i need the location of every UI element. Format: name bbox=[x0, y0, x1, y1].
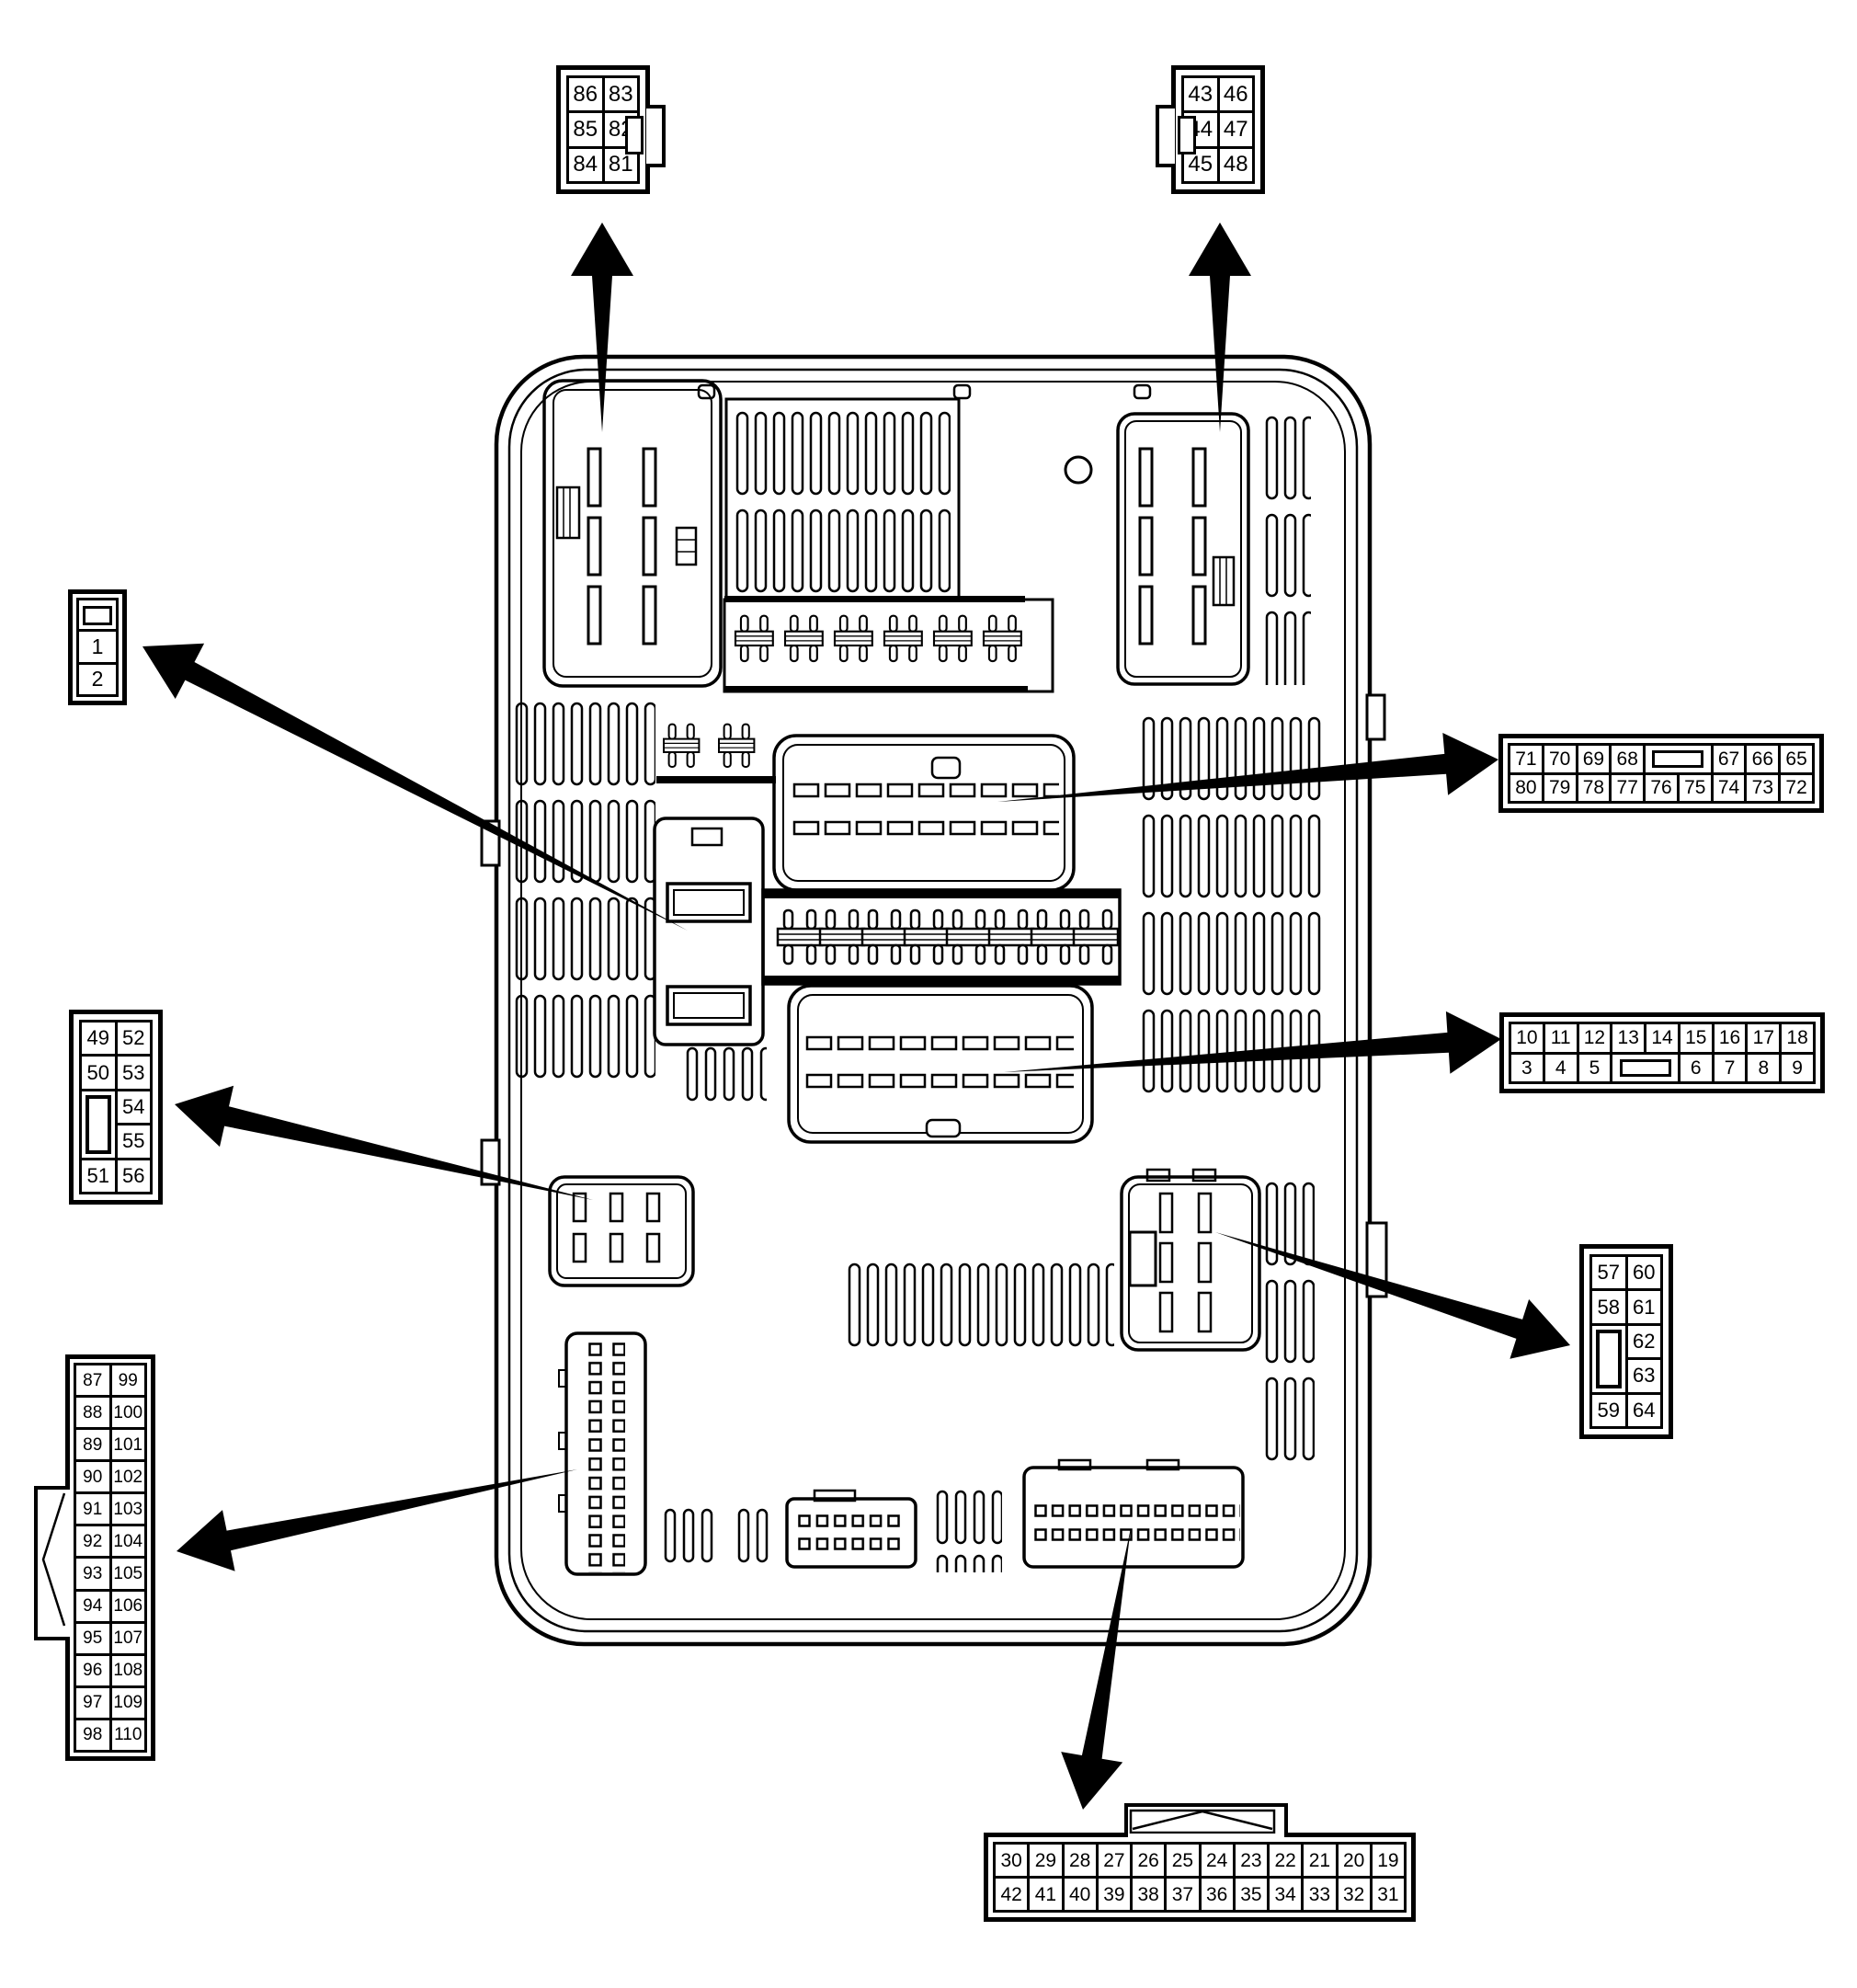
connector-notch bbox=[34, 1486, 70, 1640]
pin-66: 66 bbox=[1747, 746, 1778, 772]
pinout-table-19-42: 3029282726252423222120194241403938373635… bbox=[984, 1833, 1416, 1922]
pin-25: 25 bbox=[1167, 1845, 1198, 1876]
pin-80: 80 bbox=[1510, 775, 1542, 802]
pin-78: 78 bbox=[1578, 775, 1610, 802]
pin-1: 1 bbox=[79, 629, 116, 662]
pin-97: 97 bbox=[76, 1688, 109, 1718]
callout-arrow bbox=[177, 1469, 577, 1571]
relay-block-left bbox=[544, 381, 721, 686]
pin-70: 70 bbox=[1544, 746, 1576, 772]
pin-87: 87 bbox=[76, 1365, 109, 1395]
pin-101: 101 bbox=[112, 1430, 145, 1459]
pin-86: 86 bbox=[569, 78, 602, 110]
connector-block-3-18 bbox=[789, 986, 1092, 1142]
connector-block-19-42 bbox=[1024, 1460, 1243, 1567]
callout-arrow bbox=[1061, 1528, 1131, 1810]
pin-grid: 1011121314151617183456789 bbox=[1509, 1022, 1816, 1084]
pin-47: 47 bbox=[1220, 113, 1253, 145]
pin-106: 106 bbox=[112, 1592, 145, 1621]
connector-block-87-110 bbox=[559, 1333, 645, 1574]
pin-37: 37 bbox=[1167, 1879, 1198, 1910]
pin-72: 72 bbox=[1781, 775, 1812, 802]
keyway-slot bbox=[1620, 1059, 1671, 1077]
connector-block-12pin bbox=[787, 1491, 916, 1567]
pin-grid: 8799881008910190102911039210493105941069… bbox=[74, 1363, 147, 1753]
pin-58: 58 bbox=[1592, 1291, 1625, 1322]
pin-102: 102 bbox=[112, 1462, 145, 1491]
pin-89: 89 bbox=[76, 1430, 109, 1459]
pin-23: 23 bbox=[1236, 1845, 1267, 1876]
pin-29: 29 bbox=[1030, 1845, 1061, 1876]
pin-grid: 5760586162635964 bbox=[1589, 1254, 1663, 1429]
keyway-cell-vertical bbox=[1592, 1326, 1625, 1392]
pin-57: 57 bbox=[1592, 1257, 1625, 1288]
pin-33: 33 bbox=[1304, 1879, 1335, 1910]
pin-30: 30 bbox=[996, 1845, 1027, 1876]
keyway-slot bbox=[85, 1095, 111, 1154]
pin-19: 19 bbox=[1373, 1845, 1404, 1876]
pin-15: 15 bbox=[1680, 1024, 1712, 1052]
pin-38: 38 bbox=[1133, 1879, 1164, 1910]
pin-100: 100 bbox=[112, 1398, 145, 1427]
pin-5: 5 bbox=[1579, 1055, 1611, 1082]
pin-43: 43 bbox=[1184, 78, 1217, 110]
relay-block-right bbox=[1065, 414, 1248, 684]
pin-109: 109 bbox=[112, 1688, 145, 1718]
pin-46: 46 bbox=[1220, 78, 1253, 110]
pin-69: 69 bbox=[1578, 746, 1610, 772]
pin-76: 76 bbox=[1646, 775, 1677, 802]
pin-51: 51 bbox=[82, 1160, 115, 1192]
pin-grid: 3029282726252423222120194241403938373635… bbox=[993, 1842, 1407, 1913]
pin-53: 53 bbox=[118, 1057, 151, 1088]
pin-74: 74 bbox=[1714, 775, 1745, 802]
pin-50: 50 bbox=[82, 1057, 115, 1088]
pin-18: 18 bbox=[1782, 1024, 1813, 1052]
pin-49: 49 bbox=[82, 1023, 115, 1054]
pin-8: 8 bbox=[1748, 1055, 1779, 1082]
pin-62: 62 bbox=[1628, 1326, 1661, 1357]
connector-notch bbox=[646, 105, 666, 167]
pin-61: 61 bbox=[1628, 1291, 1661, 1322]
pin-68: 68 bbox=[1612, 746, 1643, 772]
pinout-table-65-80: 71706968676665807978777675747372 bbox=[1498, 734, 1824, 813]
pin-67: 67 bbox=[1714, 746, 1745, 772]
pin-99: 99 bbox=[112, 1365, 145, 1395]
pin-11: 11 bbox=[1545, 1024, 1577, 1052]
pinout-table-1-2: 1 2 bbox=[68, 589, 127, 705]
pin-40: 40 bbox=[1065, 1879, 1096, 1910]
pin-96: 96 bbox=[76, 1656, 109, 1685]
fuse-block-illustration bbox=[0, 0, 1857, 1988]
pinout-table-81-86: 868385828481 bbox=[556, 65, 650, 194]
connector-body: 1 2 bbox=[76, 598, 119, 697]
pin-13: 13 bbox=[1612, 1024, 1644, 1052]
keyway-slot bbox=[1596, 1330, 1622, 1388]
pin-60: 60 bbox=[1628, 1257, 1661, 1288]
pin-35: 35 bbox=[1236, 1879, 1267, 1910]
pin-14: 14 bbox=[1646, 1024, 1678, 1052]
pin-93: 93 bbox=[76, 1559, 109, 1588]
callout-arrow bbox=[1189, 223, 1251, 432]
pin-12: 12 bbox=[1579, 1024, 1611, 1052]
pin-92: 92 bbox=[76, 1526, 109, 1556]
pin-7: 7 bbox=[1715, 1055, 1746, 1082]
keyway-cell-vertical bbox=[82, 1091, 115, 1158]
screw-hole bbox=[1065, 457, 1091, 483]
pin-52: 52 bbox=[118, 1023, 151, 1054]
pin-2: 2 bbox=[79, 662, 116, 695]
pin-48: 48 bbox=[1220, 149, 1253, 181]
pin-110: 110 bbox=[112, 1720, 145, 1750]
pin-64: 64 bbox=[1628, 1395, 1661, 1426]
pin-63: 63 bbox=[1628, 1360, 1661, 1391]
mini-fuse-strip bbox=[763, 890, 1120, 984]
pin-10: 10 bbox=[1511, 1024, 1543, 1052]
pin-20: 20 bbox=[1339, 1845, 1370, 1876]
pin-55: 55 bbox=[118, 1125, 151, 1157]
pin-105: 105 bbox=[112, 1559, 145, 1588]
keyway-slot bbox=[83, 606, 112, 625]
pin-4: 4 bbox=[1545, 1055, 1577, 1082]
pin-31: 31 bbox=[1373, 1879, 1404, 1910]
pin-95: 95 bbox=[76, 1624, 109, 1653]
pin-85: 85 bbox=[569, 113, 602, 145]
mini-fuse-pair bbox=[656, 725, 776, 783]
pin-39: 39 bbox=[1099, 1879, 1130, 1910]
tab-chevron bbox=[1128, 1807, 1277, 1834]
pin-88: 88 bbox=[76, 1398, 109, 1427]
notch-chevron bbox=[38, 1490, 66, 1629]
pin-103: 103 bbox=[112, 1494, 145, 1524]
pin-108: 108 bbox=[112, 1656, 145, 1685]
pin-34: 34 bbox=[1270, 1879, 1301, 1910]
pin-9: 9 bbox=[1782, 1055, 1813, 1082]
connector-tab bbox=[1124, 1803, 1288, 1837]
pin-56: 56 bbox=[118, 1160, 151, 1192]
pin-104: 104 bbox=[112, 1526, 145, 1556]
pin-75: 75 bbox=[1680, 775, 1711, 802]
pin-3: 3 bbox=[1511, 1055, 1543, 1082]
keyway-box bbox=[625, 116, 644, 154]
pinout-table-49-56: 4952505354555156 bbox=[69, 1010, 163, 1205]
connector-block-57-64 bbox=[1122, 1170, 1259, 1350]
pin-83: 83 bbox=[605, 78, 638, 110]
pin-107: 107 bbox=[112, 1624, 145, 1653]
connector-notch bbox=[1156, 105, 1175, 167]
pin-41: 41 bbox=[1030, 1879, 1061, 1910]
pin-28: 28 bbox=[1065, 1845, 1096, 1876]
pin-77: 77 bbox=[1612, 775, 1643, 802]
pin-24: 24 bbox=[1202, 1845, 1233, 1876]
diagram-canvas: 868385828481 434644474548 1 2 7170696867… bbox=[0, 0, 1857, 1988]
keyway-slot bbox=[1652, 750, 1703, 768]
pin-79: 79 bbox=[1544, 775, 1576, 802]
keyway-cell-horizontal bbox=[1646, 746, 1711, 772]
connector-block-65-80 bbox=[774, 736, 1074, 890]
pin-grid: 4952505354555156 bbox=[79, 1020, 153, 1194]
pin-17: 17 bbox=[1748, 1024, 1779, 1052]
pin-90: 90 bbox=[76, 1462, 109, 1491]
pin-84: 84 bbox=[569, 149, 602, 181]
pin-94: 94 bbox=[76, 1592, 109, 1621]
keyway-cell-horizontal bbox=[1612, 1055, 1678, 1082]
relay-socket-block bbox=[655, 818, 763, 1045]
pin-16: 16 bbox=[1715, 1024, 1746, 1052]
callout-arrow bbox=[175, 1086, 593, 1200]
vent-slat-fields bbox=[513, 405, 1324, 1572]
pin-73: 73 bbox=[1747, 775, 1778, 802]
pin-59: 59 bbox=[1592, 1395, 1625, 1426]
pin-65: 65 bbox=[1781, 746, 1812, 772]
pin-6: 6 bbox=[1680, 1055, 1712, 1082]
pin-26: 26 bbox=[1133, 1845, 1164, 1876]
callout-arrow bbox=[571, 223, 633, 432]
connector-block-49-56 bbox=[550, 1177, 693, 1285]
pin-91: 91 bbox=[76, 1494, 109, 1524]
pin-71: 71 bbox=[1510, 746, 1542, 772]
mini-fuse-row-top bbox=[735, 616, 1021, 661]
pin-22: 22 bbox=[1270, 1845, 1301, 1876]
pin-36: 36 bbox=[1202, 1879, 1233, 1910]
pin-21: 21 bbox=[1304, 1845, 1335, 1876]
pin-32: 32 bbox=[1339, 1879, 1370, 1910]
pinout-table-87-110: 8799881008910190102911039210493105941069… bbox=[65, 1354, 155, 1761]
pinout-table-43-48: 434644474548 bbox=[1171, 65, 1265, 194]
pinout-table-3-18: 1011121314151617183456789 bbox=[1499, 1012, 1825, 1093]
keyway-box bbox=[1178, 116, 1196, 154]
pin-54: 54 bbox=[118, 1091, 151, 1123]
pin-42: 42 bbox=[996, 1879, 1027, 1910]
pin-grid: 71706968676665807978777675747372 bbox=[1508, 743, 1815, 804]
pinout-table-57-64: 5760586162635964 bbox=[1579, 1244, 1673, 1439]
pin-27: 27 bbox=[1099, 1845, 1130, 1876]
pin-98: 98 bbox=[76, 1720, 109, 1750]
